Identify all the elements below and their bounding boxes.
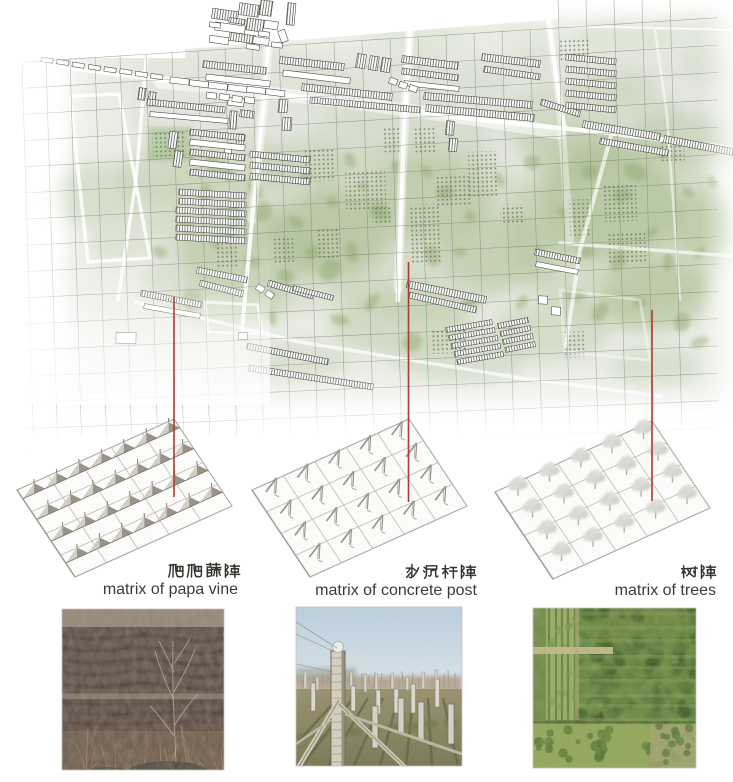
svg-text:matrix of concrete post: matrix of concrete post bbox=[315, 582, 477, 599]
svg-text:matrix of trees: matrix of trees bbox=[615, 582, 716, 599]
svg-text:matrix of papa vine: matrix of papa vine bbox=[103, 581, 238, 598]
